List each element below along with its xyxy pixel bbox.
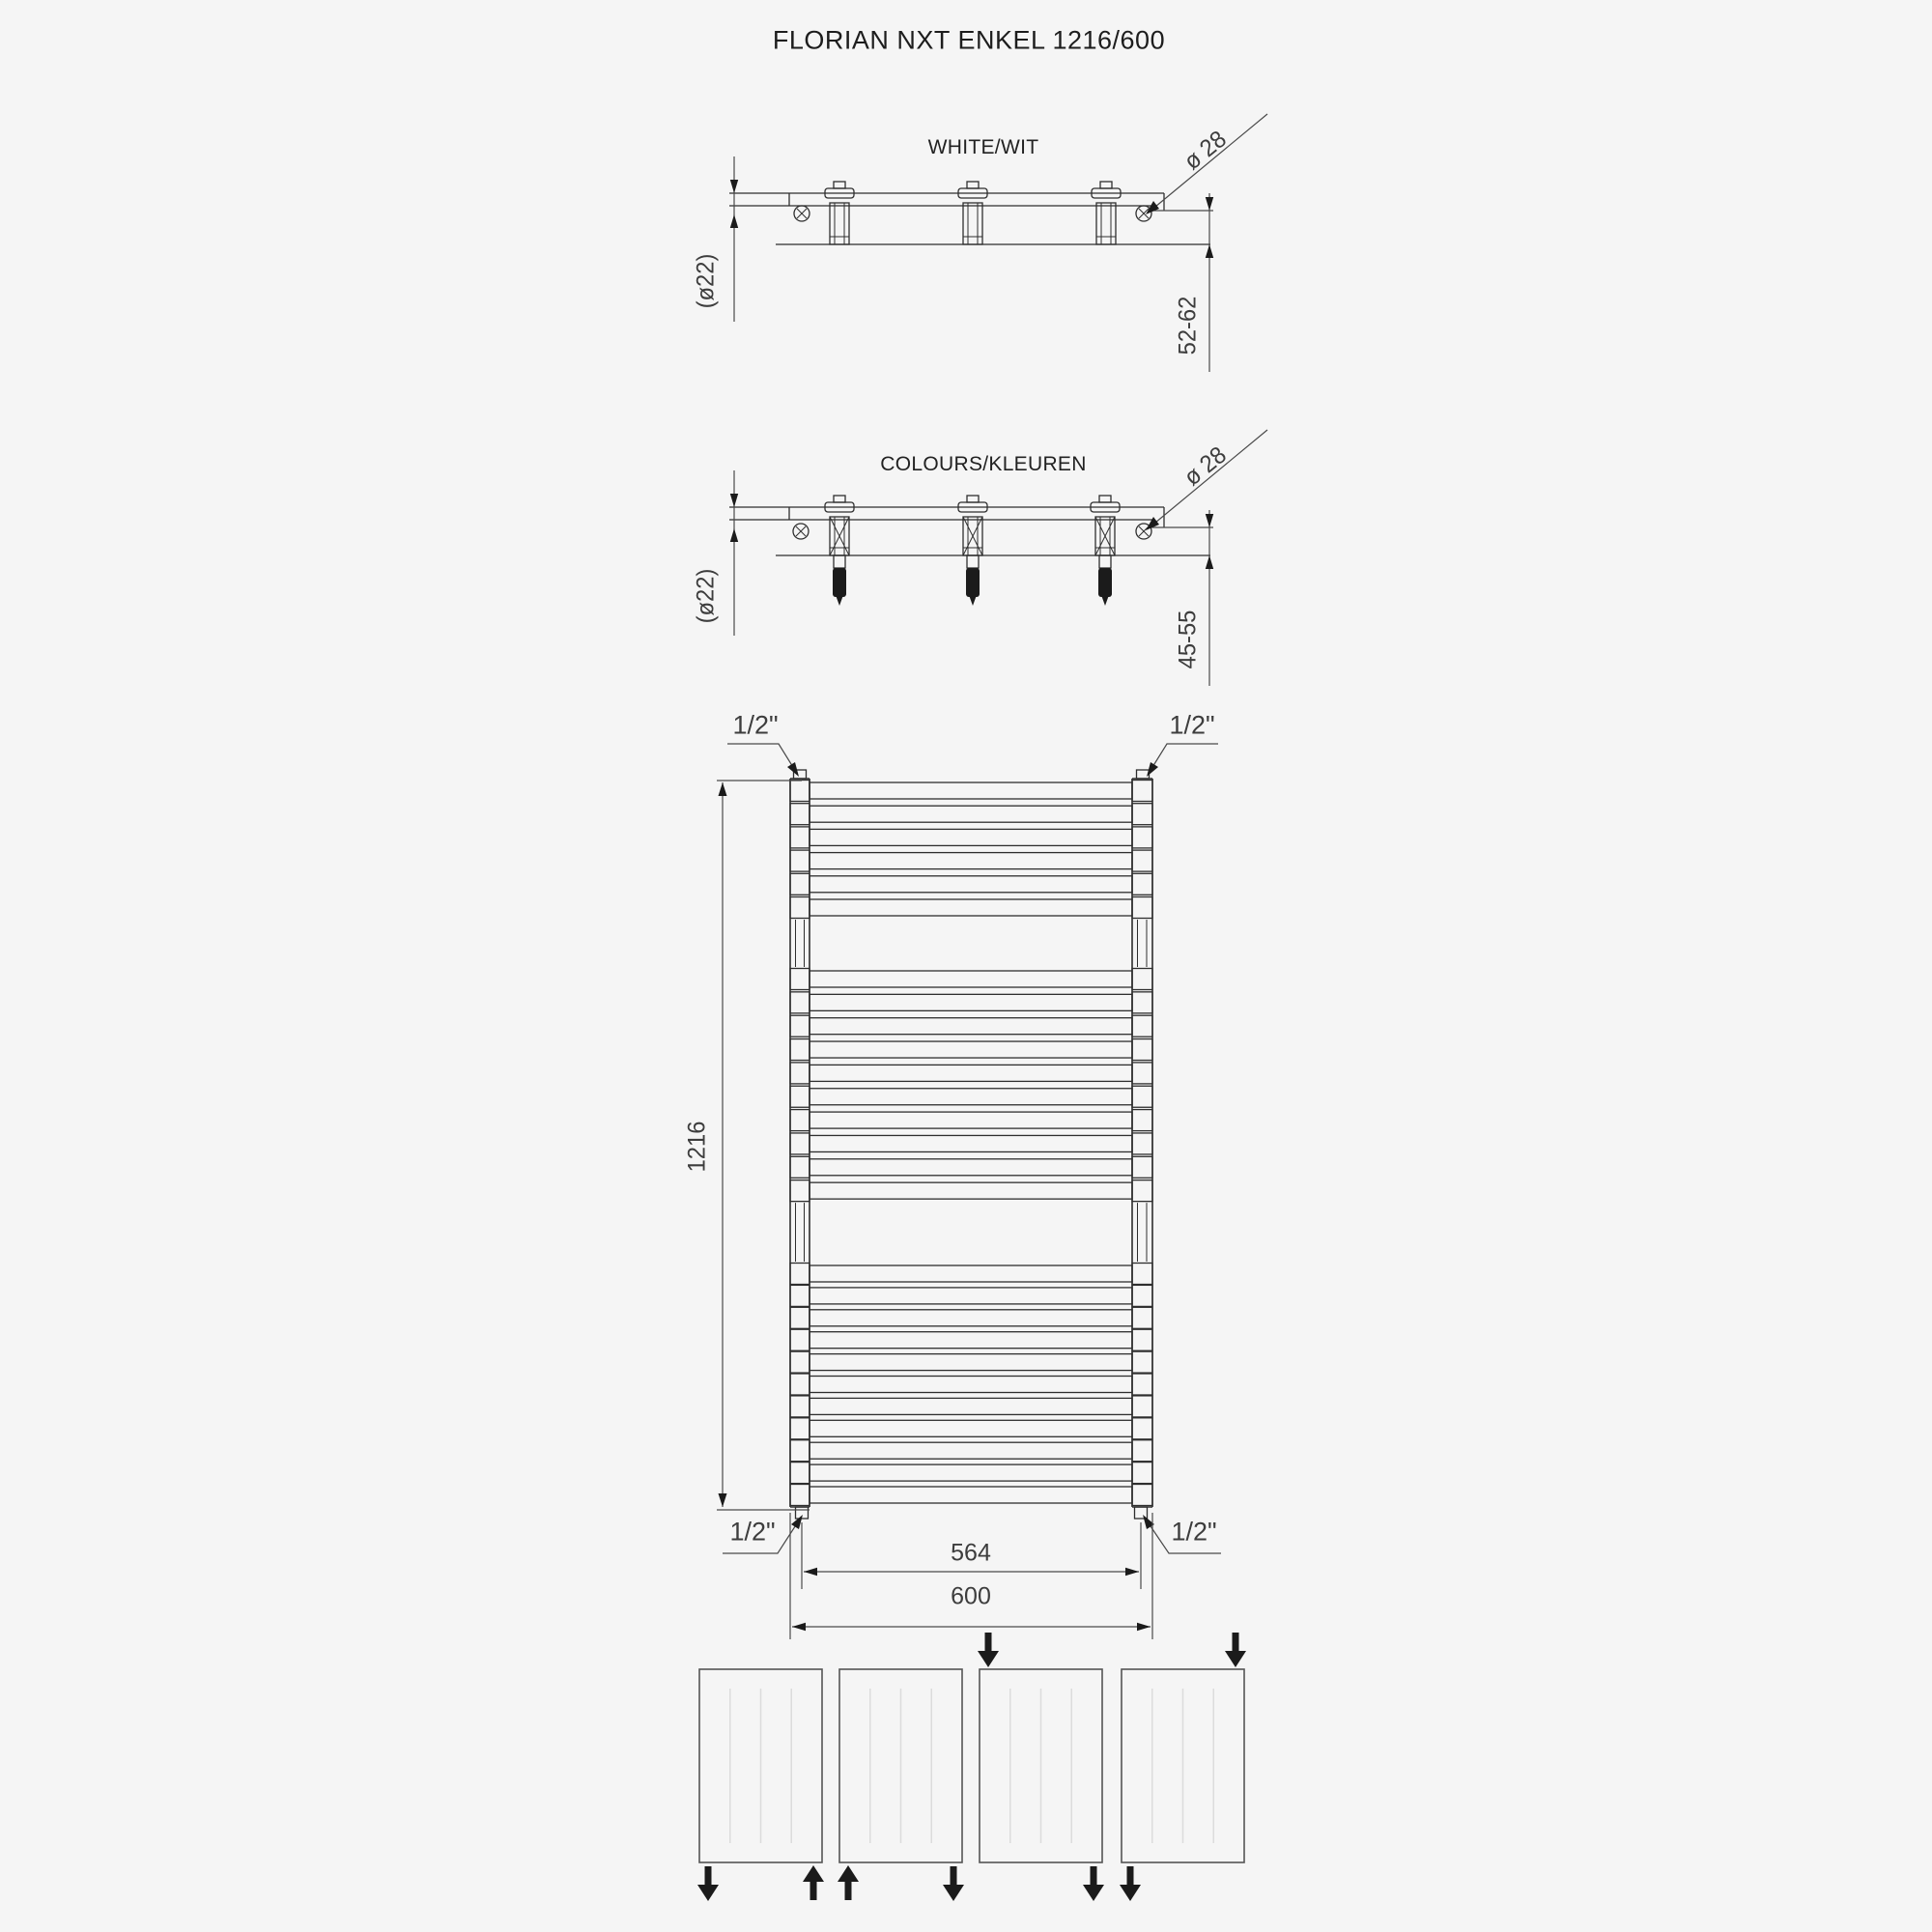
- flow-arrow-down-icon: [943, 1866, 964, 1901]
- radiator-tube: [810, 1487, 1132, 1503]
- dim-height: [717, 781, 810, 1510]
- dim-label-conn-top-left: 1/2": [732, 711, 778, 741]
- radiator-tube: [810, 1354, 1132, 1371]
- flow-arrow-down-icon: [978, 1633, 999, 1667]
- dim-tube-diameter: [730, 156, 738, 322]
- flow-arrow-down-icon: [1225, 1633, 1246, 1667]
- radiator-tube: [810, 853, 1132, 869]
- technical-drawing-page: FLORIAN NXT ENKEL 1216/600 WHITE/WIT ø 2…: [0, 0, 1932, 1932]
- dim-label-wall-distance: 45-55: [1175, 611, 1203, 669]
- radiator-tube: [810, 994, 1132, 1010]
- screw-head-icon: [794, 206, 810, 221]
- bracket-icon: [1091, 496, 1120, 555]
- connection-schemes: [697, 1633, 1246, 1901]
- bracket-icon: [958, 182, 987, 244]
- drawing-canvas: [0, 0, 1932, 1932]
- front-view-radiator: [717, 744, 1221, 1639]
- view-label-white: WHITE/WIT: [928, 136, 1039, 159]
- radiator-tube: [810, 1464, 1132, 1481]
- wall-brackets-with-anchors: [825, 496, 1120, 606]
- flow-arrow-down-icon: [1120, 1866, 1141, 1901]
- radiator-tube: [810, 1041, 1132, 1058]
- radiator-tube: [810, 876, 1132, 893]
- dim-label-tube-diameter: (ø22): [693, 569, 721, 624]
- radiator-tube: [810, 1420, 1132, 1436]
- connection-scheme: [838, 1669, 964, 1901]
- radiator-tube: [810, 806, 1132, 822]
- anchor-plug-icon: [966, 555, 980, 606]
- flow-arrow-up-icon: [803, 1865, 824, 1900]
- dim-overall-width: [790, 1513, 1152, 1639]
- radiator-tube: [810, 1288, 1132, 1304]
- radiator-tube: [810, 1377, 1132, 1393]
- radiator-tube: [810, 1182, 1132, 1199]
- dim-label-height: 1216: [684, 1122, 712, 1173]
- radiator-tube: [810, 1065, 1132, 1081]
- dim-label-tube-diameter: (ø22): [693, 254, 721, 309]
- screw-head-icon: [793, 524, 809, 539]
- dim-label-connection-pitch: 564: [951, 1540, 991, 1568]
- radiator-tube: [810, 1112, 1132, 1128]
- radiator-tube: [810, 1089, 1132, 1105]
- radiator-tube: [810, 899, 1132, 916]
- radiator-tube: [810, 1332, 1132, 1349]
- dim-tube-diameter: [730, 470, 738, 636]
- leader-conn-top-right: [1147, 744, 1218, 777]
- bracket-icon: [825, 496, 854, 555]
- wall-brackets: [825, 182, 1121, 244]
- radiator-tube: [810, 1442, 1132, 1459]
- radiator-tube: [810, 782, 1132, 799]
- bracket-icon: [1092, 182, 1121, 244]
- radiator-tube: [810, 1018, 1132, 1035]
- flow-arrow-down-icon: [1083, 1866, 1104, 1901]
- radiator-tube: [810, 971, 1132, 987]
- radiator-tubes: [790, 781, 1152, 1506]
- connection-scheme: [978, 1633, 1104, 1901]
- leader-conn-top-left: [727, 744, 799, 777]
- radiator-tube: [810, 1159, 1132, 1176]
- radiator-tube: [810, 1265, 1132, 1282]
- view-label-colours: COLOURS/KLEUREN: [880, 453, 1086, 476]
- radiator-tube: [810, 1135, 1132, 1151]
- connection-scheme: [1120, 1633, 1246, 1901]
- anchor-plug-icon: [833, 555, 846, 606]
- flow-arrow-down-icon: [697, 1866, 719, 1901]
- connection-scheme: [697, 1669, 824, 1901]
- dim-label-conn-top-right: 1/2": [1169, 711, 1214, 741]
- flow-arrow-up-icon: [838, 1865, 859, 1900]
- drawing-title: FLORIAN NXT ENKEL 1216/600: [773, 26, 1165, 56]
- anchor-plug-icon: [1098, 555, 1112, 606]
- dim-label-conn-bottom-left: 1/2": [729, 1518, 775, 1548]
- dim-label-conn-bottom-right: 1/2": [1171, 1518, 1216, 1548]
- screw-head-icon: [1136, 206, 1151, 221]
- radiator-tube: [810, 1310, 1132, 1326]
- bracket-icon: [825, 182, 854, 244]
- dim-label-wall-distance: 52-62: [1175, 297, 1203, 355]
- dim-label-overall-width: 600: [951, 1583, 991, 1611]
- radiator-tube: [810, 829, 1132, 845]
- bracket-icon: [958, 496, 987, 555]
- radiator-tube: [810, 1398, 1132, 1414]
- connection-stub: [1137, 770, 1150, 779]
